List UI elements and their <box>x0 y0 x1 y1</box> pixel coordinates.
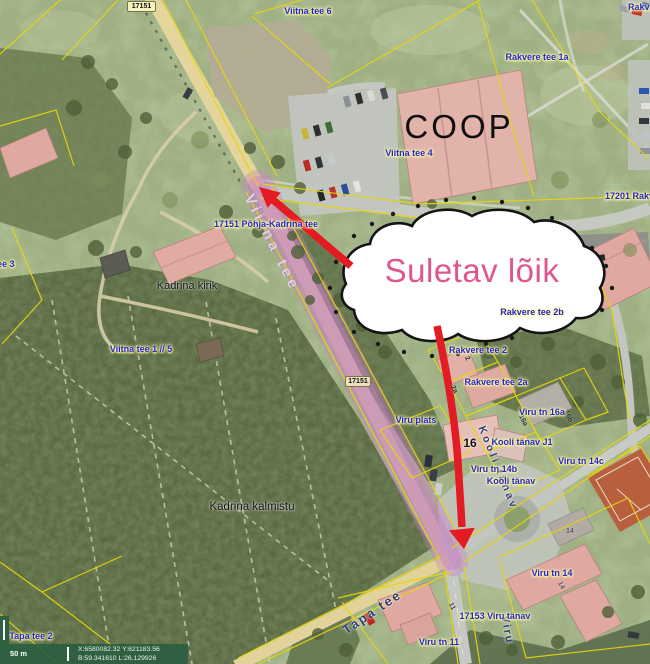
scale-tick <box>67 647 69 661</box>
address-label: Rakvere tee 1a <box>505 52 568 62</box>
address-label: Kooli tänav J1 <box>491 437 552 447</box>
address-label: Viru plats <box>396 415 437 425</box>
address-label: Viitna tee 4 <box>385 148 432 158</box>
road-number-badge: 17151 <box>345 376 371 387</box>
place-label-cemetery: Kadrina kalmistu <box>209 501 294 513</box>
address-label: 17201 Rakvere tee <box>605 191 650 201</box>
aerial-basemap <box>0 0 650 664</box>
scale-text: 50 m <box>10 649 27 658</box>
address-label: Viru tn 11 <box>419 637 459 647</box>
address-label: 17151 Põhja-Kadrina tee <box>214 219 318 229</box>
address-label: Rakvere tee 2 <box>449 345 507 355</box>
road-number-badge: 17151 <box>127 1 156 12</box>
coordinates-xy: X:6580082.32 Y:621183.56 <box>78 646 160 653</box>
address-label: Viitna tee 1 // 5 <box>110 344 172 354</box>
coordinates-bl: B:59.341610 L:26.129926 <box>78 655 156 662</box>
map-canvas[interactable]: 17151 17151 Viitna tee 6 Rakvere tee Rak… <box>0 0 650 664</box>
address-label: Rakvere tee 2b <box>500 307 564 317</box>
address-label: tee 3 <box>0 259 15 269</box>
place-label-coop: COOP <box>404 108 513 146</box>
address-label: Viitna tee 6 <box>284 6 331 16</box>
place-label-church: Kadrina kirik <box>157 280 218 292</box>
address-label: Kooli tänav <box>487 476 536 486</box>
parcel-number: 14 <box>566 528 574 535</box>
closure-bubble-text: Suletav lõik <box>385 252 560 290</box>
address-label: Viru tn 14b <box>471 464 517 474</box>
building-number: 16 <box>463 436 476 450</box>
scale-widget-tick <box>3 620 5 640</box>
scale-widget <box>0 616 9 644</box>
address-label: Viru tn 14 <box>532 568 573 578</box>
address-label: Tapa tee 2 <box>9 631 52 641</box>
address-label: Viru tn 16a <box>519 407 565 417</box>
status-bar: 50 m X:6580082.32 Y:621183.56 B:59.34161… <box>0 644 188 664</box>
address-label: Rakvere tee 2a <box>464 377 527 387</box>
address-label: Viru tn 14c <box>558 456 604 466</box>
address-label: 17153 Viru tänav <box>460 611 531 621</box>
address-label: Rakvere tee <box>628 2 650 12</box>
